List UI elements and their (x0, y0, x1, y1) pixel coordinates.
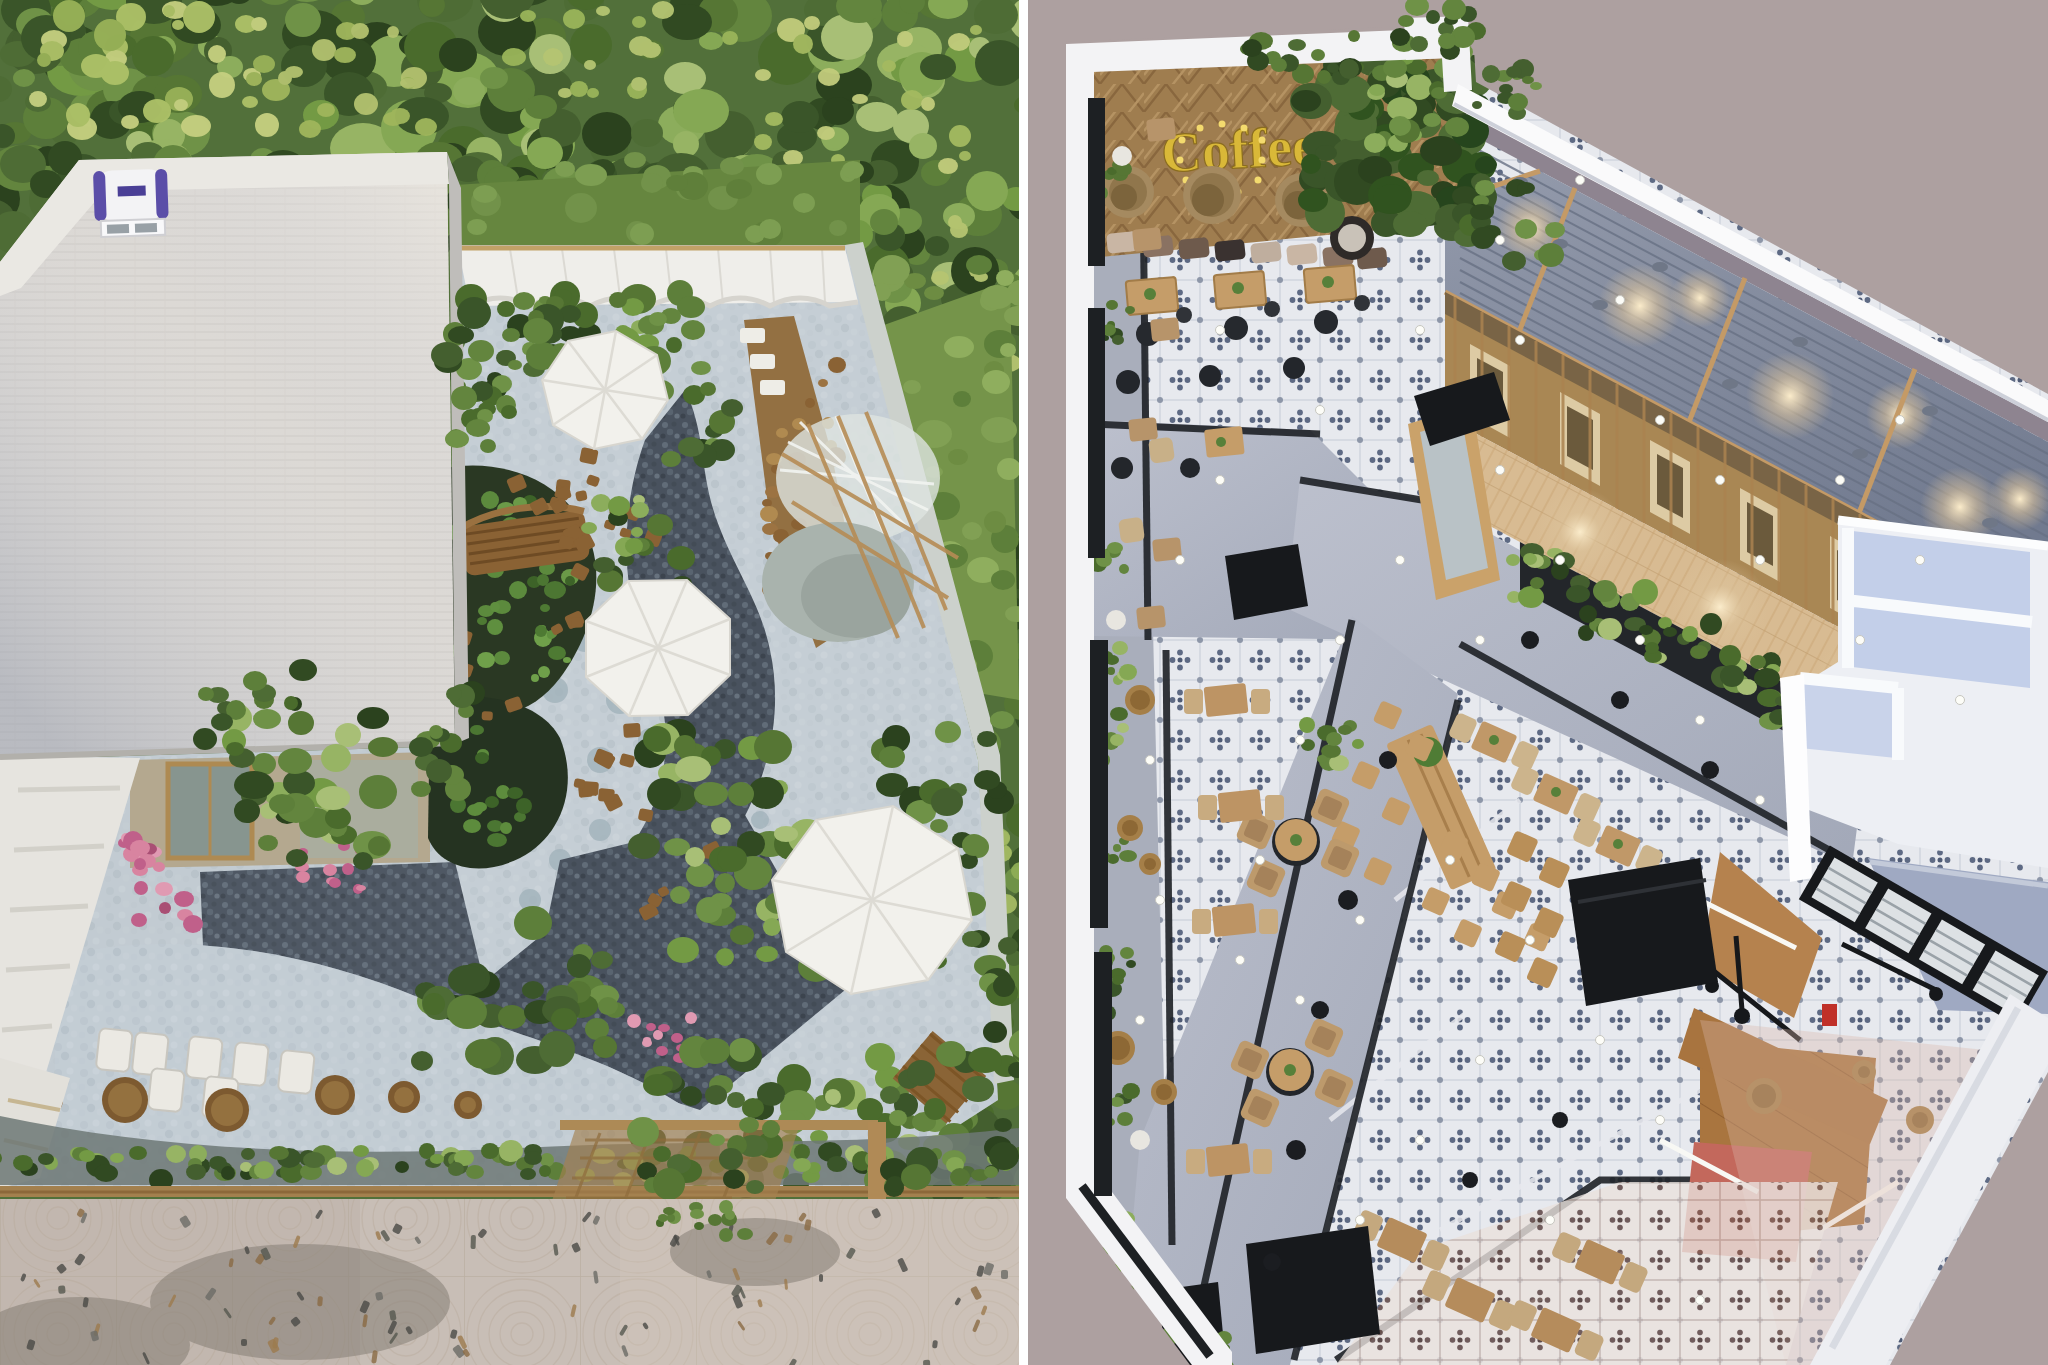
svg-text:Coffee: Coffee (1160, 114, 1318, 184)
